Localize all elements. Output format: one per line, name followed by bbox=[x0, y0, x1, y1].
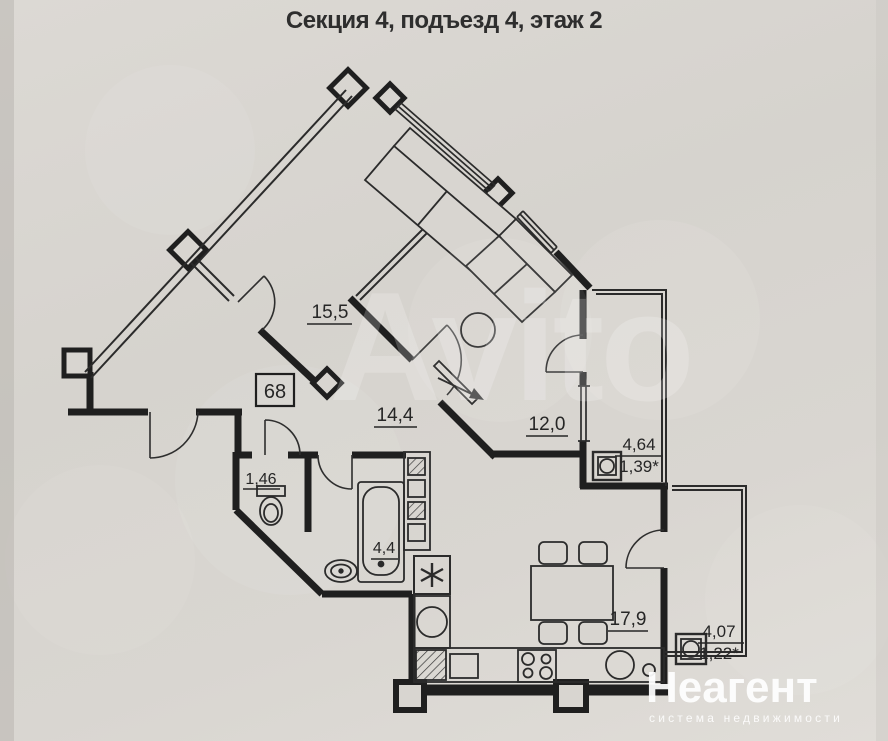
brand-logo-name: Неагент bbox=[646, 663, 818, 712]
brand-logo-tagline: система недвижимости bbox=[649, 711, 843, 725]
page-title: Секция 4, подъезд 4, этаж 2 bbox=[286, 7, 602, 34]
kitchen-counter bbox=[414, 648, 664, 682]
chair bbox=[539, 542, 567, 564]
loggia-label-1-39: 1,39* bbox=[619, 457, 659, 476]
room-label-1-46: 1,46 bbox=[245, 471, 276, 488]
room-label-17-9: 17,9 bbox=[610, 609, 647, 630]
kitchen-sink bbox=[606, 651, 634, 679]
apartment-number-label: 68 bbox=[264, 381, 286, 403]
door-terrace bbox=[238, 276, 275, 330]
chair bbox=[579, 622, 607, 644]
loggia-label-4-07: 4,07 bbox=[702, 622, 735, 641]
loggia-label-4-64: 4,64 bbox=[622, 435, 655, 454]
washing-machine bbox=[416, 650, 446, 680]
door-loggia-bottom bbox=[626, 530, 664, 568]
chair bbox=[579, 542, 607, 564]
photo-edge-left bbox=[0, 0, 14, 741]
stove bbox=[518, 650, 556, 682]
fridge-marker-box bbox=[414, 556, 450, 594]
loggia-label-1-22: 1,22* bbox=[699, 644, 739, 663]
counter-cabinet bbox=[450, 654, 478, 678]
brand-logo: Неагент система недвижимости bbox=[646, 663, 843, 725]
plumbing-shaft bbox=[404, 452, 430, 550]
asterisk-icon bbox=[421, 563, 443, 587]
avito-watermark: Avito bbox=[329, 238, 691, 433]
chair bbox=[539, 622, 567, 644]
photo-edge-right bbox=[876, 0, 888, 741]
dining-table bbox=[531, 542, 613, 644]
floor-plan-photo: Секция 4, подъезд 4, этаж 2 bbox=[0, 0, 888, 741]
room-label-4-4: 4,4 bbox=[373, 540, 395, 557]
kitchen-cabinet-sink bbox=[414, 596, 450, 648]
floor-plan: Секция 4, подъезд 4, этаж 2 bbox=[0, 0, 888, 741]
